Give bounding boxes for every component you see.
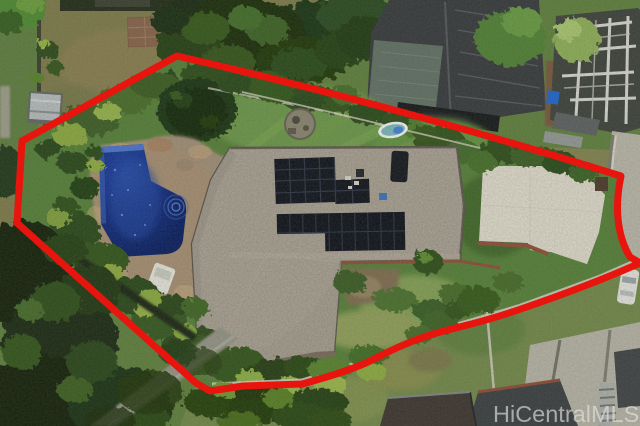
svg-text:HiCentralMLS: HiCentralMLS	[493, 401, 639, 426]
